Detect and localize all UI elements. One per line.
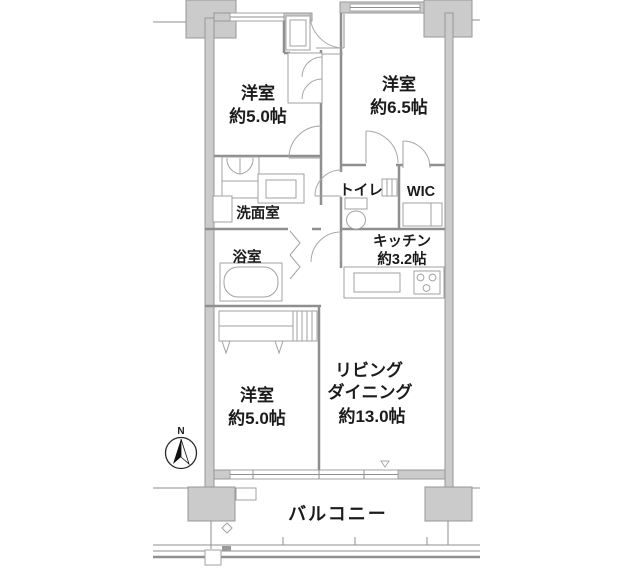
toilet-label: トイレ xyxy=(339,183,383,199)
bottom-wall-left xyxy=(214,470,230,479)
bedroom1-name: 洋室 xyxy=(241,83,275,103)
toilet-door-arc xyxy=(315,170,341,196)
door-arc xyxy=(366,131,398,163)
vanity-sink-icon xyxy=(258,174,304,203)
toilet-shelf xyxy=(382,179,397,196)
balcony-label: バルコニー xyxy=(288,504,388,524)
north-label: N xyxy=(177,426,184,437)
living-size: 約13.0帖 xyxy=(338,406,405,426)
living-door-arc xyxy=(311,232,341,262)
door-arc xyxy=(289,126,321,158)
bedroom2-name: 洋室 xyxy=(382,74,416,94)
bedroom1-size: 約5.0帖 xyxy=(229,106,287,126)
bottom-wall-right xyxy=(398,470,445,479)
balcony-notch xyxy=(236,488,256,500)
pillar xyxy=(188,487,235,521)
bedroom2-size: 約6.5帖 xyxy=(370,97,428,117)
kitchen-name: キッチン xyxy=(373,233,431,250)
bathtub-outer xyxy=(220,263,282,301)
drain-grate xyxy=(222,546,231,551)
floor-plan-drawing: N 洋室 約5.0帖 洋室 約6.5帖 トイレ WIC 洗面室 浴室 キッチン … xyxy=(0,0,640,569)
washroom-label: 洗面室 xyxy=(236,204,280,222)
bedroom3-size: 約5.0帖 xyxy=(228,408,286,428)
right-wall xyxy=(445,13,453,487)
kitchen-size: 約3.2帖 xyxy=(377,250,427,268)
wic-door-arc xyxy=(403,141,430,168)
wic-label: WIC xyxy=(407,184,436,200)
living-line2: ダイニング xyxy=(328,382,413,402)
toilet-tank xyxy=(345,198,367,209)
toilet-icon xyxy=(347,211,366,229)
bathroom-folding-door xyxy=(290,231,300,279)
closet-bedroom1 xyxy=(288,53,322,103)
outer-walls xyxy=(186,0,472,521)
floor-plan: N 洋室 約5.0帖 洋室 約6.5帖 トイレ WIC 洗面室 浴室 キッチン … xyxy=(0,0,640,569)
wic-shelf xyxy=(403,203,442,226)
entry xyxy=(286,14,344,54)
window-marker xyxy=(381,461,389,467)
railing-ticks xyxy=(283,537,427,545)
drain-box xyxy=(205,550,221,565)
bedroom3-name: 洋室 xyxy=(240,385,274,405)
compass: N xyxy=(166,426,197,469)
bathroom-label: 浴室 xyxy=(233,248,262,266)
hanger-pole-marks xyxy=(222,341,283,353)
kitchen-counter xyxy=(344,267,444,298)
drain-mark xyxy=(222,523,232,533)
living-line1: リビング xyxy=(335,360,403,380)
entrance-door-arc xyxy=(310,14,344,48)
linen-shelf xyxy=(213,196,232,222)
left-wall xyxy=(205,18,214,487)
pillar xyxy=(425,487,472,521)
